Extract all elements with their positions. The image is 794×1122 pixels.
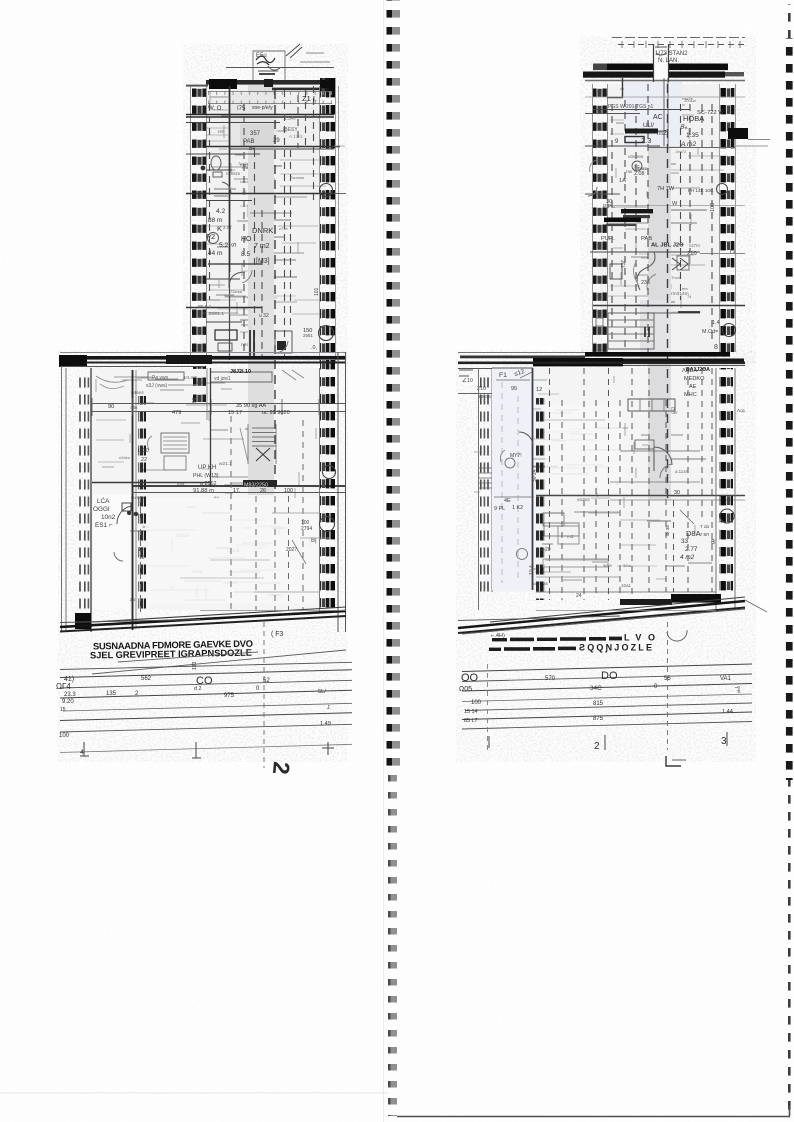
svg-text:m2: m2 xyxy=(567,534,574,540)
svg-text:VA1: VA1 xyxy=(720,676,732,682)
svg-text:UU/: UU/ xyxy=(643,122,654,129)
svg-text:rm314m: rm314m xyxy=(671,291,689,297)
svg-text:1 K2: 1 K2 xyxy=(512,505,523,511)
svg-text:15 14: 15 14 xyxy=(464,709,478,715)
svg-text:W. O.: W. O. xyxy=(208,106,223,112)
svg-text:2.08: 2.08 xyxy=(634,171,645,177)
svg-text:10: 10 xyxy=(138,547,144,553)
svg-text:133: 133 xyxy=(192,661,198,670)
svg-text:357: 357 xyxy=(250,131,261,137)
svg-text:5.2: 5.2 xyxy=(219,242,228,249)
svg-text:24: 24 xyxy=(576,593,582,599)
svg-text:ƧQQƝJOZLE: ƧQQƝJOZLE xyxy=(579,643,652,653)
svg-text:IBESY: IBESY xyxy=(283,127,298,133)
svg-text:2001w: 2001w xyxy=(684,98,696,103)
svg-text:vd jzw1: vd jzw1 xyxy=(214,376,231,382)
svg-text:98-9-1: 98-9-1 xyxy=(198,304,212,309)
svg-text:9.20: 9.20 xyxy=(62,699,74,705)
svg-text:A m2: A m2 xyxy=(680,141,696,148)
svg-text:7H 7W: 7H 7W xyxy=(657,186,675,192)
svg-text:100: 100 xyxy=(284,488,293,494)
svg-text:52: 52 xyxy=(263,678,270,684)
svg-text:W: W xyxy=(672,201,678,207)
svg-text:T1: T1 xyxy=(729,249,736,255)
svg-text:w21.1: w21.1 xyxy=(219,461,232,467)
svg-text:10 4: 10 4 xyxy=(529,565,535,575)
svg-text:8: 8 xyxy=(714,344,718,351)
svg-text:MHC: MHC xyxy=(684,392,697,398)
svg-text:562: 562 xyxy=(141,676,152,682)
svg-text:2.z3: 2.z3 xyxy=(223,225,232,230)
svg-text:Ƨ-20: Ƨ-20 xyxy=(540,547,551,553)
svg-text:J.: J. xyxy=(327,705,331,711)
svg-text:Z1 I.: Z1 I. xyxy=(302,94,317,103)
svg-text:73zrsa: 73zrsa xyxy=(230,289,243,294)
svg-text:[M3]: [M3] xyxy=(256,258,270,265)
svg-text:T da: T da xyxy=(700,524,710,529)
svg-text:35 90 xg AA: 35 90 xg AA xyxy=(236,403,266,409)
svg-text:85 L7: 85 L7 xyxy=(464,718,478,724)
svg-text:2.77: 2.77 xyxy=(685,546,698,553)
svg-text:PGS W 291-TGS n1: PGS W 291-TGS n1 xyxy=(608,104,654,110)
svg-text:43n: 43n xyxy=(130,405,138,410)
svg-text:∠10: ∠10 xyxy=(462,378,473,384)
svg-text:.42a1: .42a1 xyxy=(620,583,632,588)
svg-text:ΩΓ4: ΩΓ4 xyxy=(56,682,71,691)
svg-text:Pa vws: Pa vws xyxy=(152,375,169,381)
svg-text:F1: F1 xyxy=(499,372,507,379)
svg-text:AC: AC xyxy=(653,114,663,121)
svg-text:.88 m: .88 m xyxy=(206,217,223,224)
svg-text:875: 875 xyxy=(593,716,604,722)
svg-text:26: 26 xyxy=(260,488,266,494)
svg-text:4: 4 xyxy=(80,749,84,756)
svg-text:FH 14E 10Є: FH 14E 10Є xyxy=(688,188,714,193)
svg-text:2581: 2581 xyxy=(303,333,313,338)
svg-text:1(73 STAN2: 1(73 STAN2 xyxy=(655,51,688,57)
svg-text:K: K xyxy=(217,224,222,233)
svg-text:1A: 1A xyxy=(619,178,626,184)
svg-text:3: 3 xyxy=(721,736,727,747)
svg-text:15 17: 15 17 xyxy=(228,410,242,416)
svg-text:1.49: 1.49 xyxy=(320,721,331,727)
svg-text:2: 2 xyxy=(268,761,295,776)
svg-text:sk 35: sk 35 xyxy=(665,525,670,536)
svg-text:34C: 34C xyxy=(590,685,602,692)
svg-text:975: 975 xyxy=(224,693,235,699)
svg-text:5L/: 5L/ xyxy=(318,689,326,695)
svg-text:236: 236 xyxy=(641,280,650,286)
svg-text:MY7!: MY7! xyxy=(510,453,522,459)
svg-text:Λq1: Λq1 xyxy=(737,408,746,413)
svg-text:7 m2: 7 m2 xyxy=(254,243,270,250)
svg-text:100: 100 xyxy=(710,203,716,212)
svg-text:OGGI: OGGI xyxy=(93,506,110,513)
svg-text:MEDKO: MEDKO xyxy=(684,376,705,382)
svg-text:A 17/4.: A 17/4. xyxy=(289,134,303,139)
svg-text:98: 98 xyxy=(192,397,198,403)
svg-text:OO: OO xyxy=(461,672,479,684)
svg-text:PHL (W13): PHL (W13) xyxy=(193,473,219,479)
svg-text:815: 815 xyxy=(593,701,604,707)
svg-text:DNRK: DNRK xyxy=(252,226,273,235)
svg-text:S: S xyxy=(231,242,238,247)
svg-text:HOBA: HOBA xyxy=(683,114,704,123)
svg-text:nz7m: nz7m xyxy=(689,243,700,248)
svg-text:100: 100 xyxy=(59,733,70,739)
svg-text:UP KH: UP KH xyxy=(198,465,216,471)
svg-text:55: 55 xyxy=(664,676,671,682)
svg-text:B|: B| xyxy=(311,538,317,544)
svg-text:( F3: ( F3 xyxy=(271,631,284,638)
svg-text:LĆA: LĆA xyxy=(97,496,110,505)
svg-text:PIPL.: PIPL. xyxy=(603,204,615,210)
svg-text:30 24: 30 24 xyxy=(532,469,538,482)
svg-text:ES1 ⌐: ES1 ⌐ xyxy=(95,522,113,529)
svg-text:91.88 m: 91.88 m xyxy=(193,488,214,494)
svg-text:I75: I75 xyxy=(237,106,246,112)
svg-text:17.: 17. xyxy=(233,488,241,494)
svg-text:2.3: 2.3 xyxy=(641,136,651,145)
svg-text:15: 15 xyxy=(60,707,66,713)
svg-text:Be: Be xyxy=(249,146,255,152)
svg-text:wae: wae xyxy=(603,564,612,569)
svg-text:.0,: .0, xyxy=(311,345,317,351)
svg-text:2: 2 xyxy=(594,741,600,752)
svg-text:10n2: 10n2 xyxy=(101,514,116,521)
svg-text:479: 479 xyxy=(172,410,181,416)
svg-text:ΛRBΛ: ΛRBΛ xyxy=(682,368,698,374)
svg-text:1 44: 1 44 xyxy=(722,709,733,715)
svg-text:E5u: E5u xyxy=(256,53,267,59)
svg-text:90: 90 xyxy=(108,404,114,410)
svg-text:ʊ-20: ʊ-20 xyxy=(138,448,149,454)
svg-text:1.4: 1.4 xyxy=(712,320,720,326)
svg-text:uc 95 9020: uc 95 9020 xyxy=(262,410,290,416)
svg-text:D8A: D8A xyxy=(686,529,701,538)
svg-text:sne-p/e/y: sne-p/e/y xyxy=(252,105,273,111)
svg-text:23.3: 23.3 xyxy=(64,692,76,698)
svg-text:7 BR: 7 BR xyxy=(700,532,709,537)
svg-text:2027: 2027 xyxy=(286,547,297,553)
svg-text:Ω05: Ω05 xyxy=(459,686,472,693)
svg-text:4E: 4E xyxy=(504,498,511,504)
svg-text:33: 33 xyxy=(681,538,689,545)
svg-text:7vumun: 7vumun xyxy=(290,175,304,180)
svg-text:SC: SC xyxy=(634,164,640,169)
svg-text:135: 135 xyxy=(106,691,117,697)
svg-text:HO: HO xyxy=(241,236,252,243)
svg-text:2794: 2794 xyxy=(301,526,312,532)
svg-text:12: 12 xyxy=(536,387,542,393)
svg-text:4 m2: 4 m2 xyxy=(680,554,695,561)
svg-text:.44 m: .44 m xyxy=(206,250,223,257)
svg-text:nw: nw xyxy=(626,170,633,175)
svg-text:PUR.: PUR. xyxy=(601,236,615,242)
svg-text:n34ez: n34ez xyxy=(119,455,130,460)
svg-text:8: 8 xyxy=(711,539,715,546)
svg-text:10: 10 xyxy=(139,555,145,561)
svg-text:LVO: LVO xyxy=(624,633,655,643)
svg-text:4.2: 4.2 xyxy=(216,208,225,215)
svg-text:8.5: 8.5 xyxy=(241,251,250,258)
svg-text:95: 95 xyxy=(511,386,517,392)
svg-text:PAB: PAB xyxy=(641,236,652,242)
svg-text:PAB: PAB xyxy=(243,139,255,145)
svg-text:22: 22 xyxy=(141,457,147,463)
svg-text:32ra: 32ra xyxy=(623,563,632,568)
svg-text:W 23/01.1: W 23/01.1 xyxy=(203,311,224,316)
svg-text:9 PL: 9 PL xyxy=(494,506,505,512)
svg-text:DO: DO xyxy=(601,670,618,682)
svg-text:32: 32 xyxy=(132,512,138,518)
svg-text:29: 29 xyxy=(273,138,280,144)
svg-text:1.547: 1.547 xyxy=(284,116,297,122)
svg-text:1.35: 1.35 xyxy=(686,132,699,139)
svg-text:M.Od=: M.Od= xyxy=(702,329,718,335)
svg-text:AE: AE xyxy=(689,384,697,390)
svg-text:n20sze: n20sze xyxy=(226,171,241,176)
svg-text:101: 101 xyxy=(314,287,320,296)
svg-text:d 2: d 2 xyxy=(194,686,202,692)
svg-text:m2: m2 xyxy=(657,130,667,137)
svg-text:AL JBL J2Ɵ: AL JBL J2Ɵ xyxy=(651,243,684,249)
svg-text:a.114n: a.114n xyxy=(675,469,689,474)
svg-text:100: 100 xyxy=(471,700,482,706)
svg-text:s3J (vws): s3J (vws) xyxy=(146,383,167,389)
svg-text:z72e: z72e xyxy=(279,226,288,231)
svg-text:J8J2l.10: J8J2l.10 xyxy=(230,369,251,375)
svg-text:570: 570 xyxy=(545,676,556,682)
svg-text:u 32: u 32 xyxy=(259,313,269,319)
svg-text:30: 30 xyxy=(674,490,680,496)
svg-text:em: em xyxy=(682,286,688,291)
